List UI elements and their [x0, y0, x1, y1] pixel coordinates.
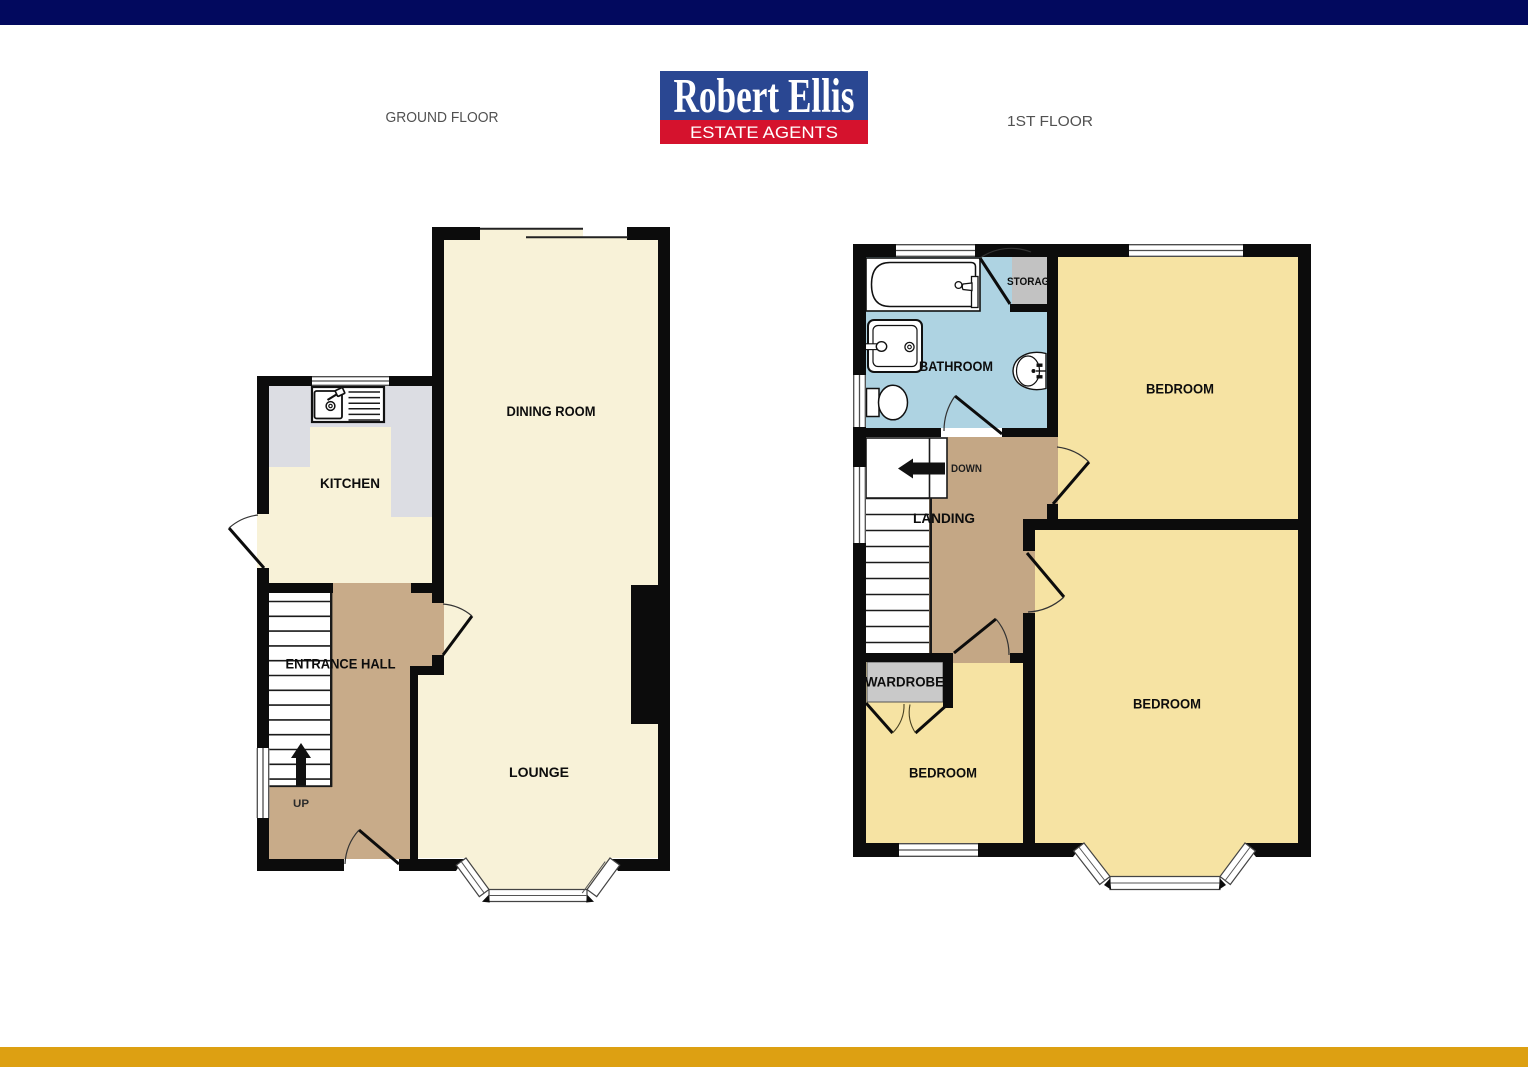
svg-text:WARDROBE: WARDROBE: [865, 675, 944, 690]
svg-text:BATHROOM: BATHROOM: [919, 358, 993, 374]
svg-text:LOUNGE: LOUNGE: [509, 764, 569, 780]
svg-text:KITCHEN: KITCHEN: [320, 475, 380, 491]
svg-text:DOWN: DOWN: [951, 463, 982, 475]
svg-text:Robert Ellis: Robert Ellis: [674, 68, 855, 123]
svg-text:UP: UP: [293, 798, 309, 810]
svg-text:BEDROOM: BEDROOM: [909, 765, 977, 781]
svg-text:BEDROOM: BEDROOM: [1133, 696, 1201, 712]
svg-text:1ST FLOOR: 1ST FLOOR: [1007, 114, 1093, 130]
svg-text:GROUND FLOOR: GROUND FLOOR: [386, 110, 499, 126]
svg-text:ESTATE AGENTS: ESTATE AGENTS: [690, 124, 838, 142]
svg-text:ENTRANCE HALL: ENTRANCE HALL: [286, 656, 396, 672]
svg-text:LANDING: LANDING: [913, 510, 975, 526]
svg-text:DINING ROOM: DINING ROOM: [507, 403, 596, 419]
svg-text:BEDROOM: BEDROOM: [1146, 381, 1214, 397]
